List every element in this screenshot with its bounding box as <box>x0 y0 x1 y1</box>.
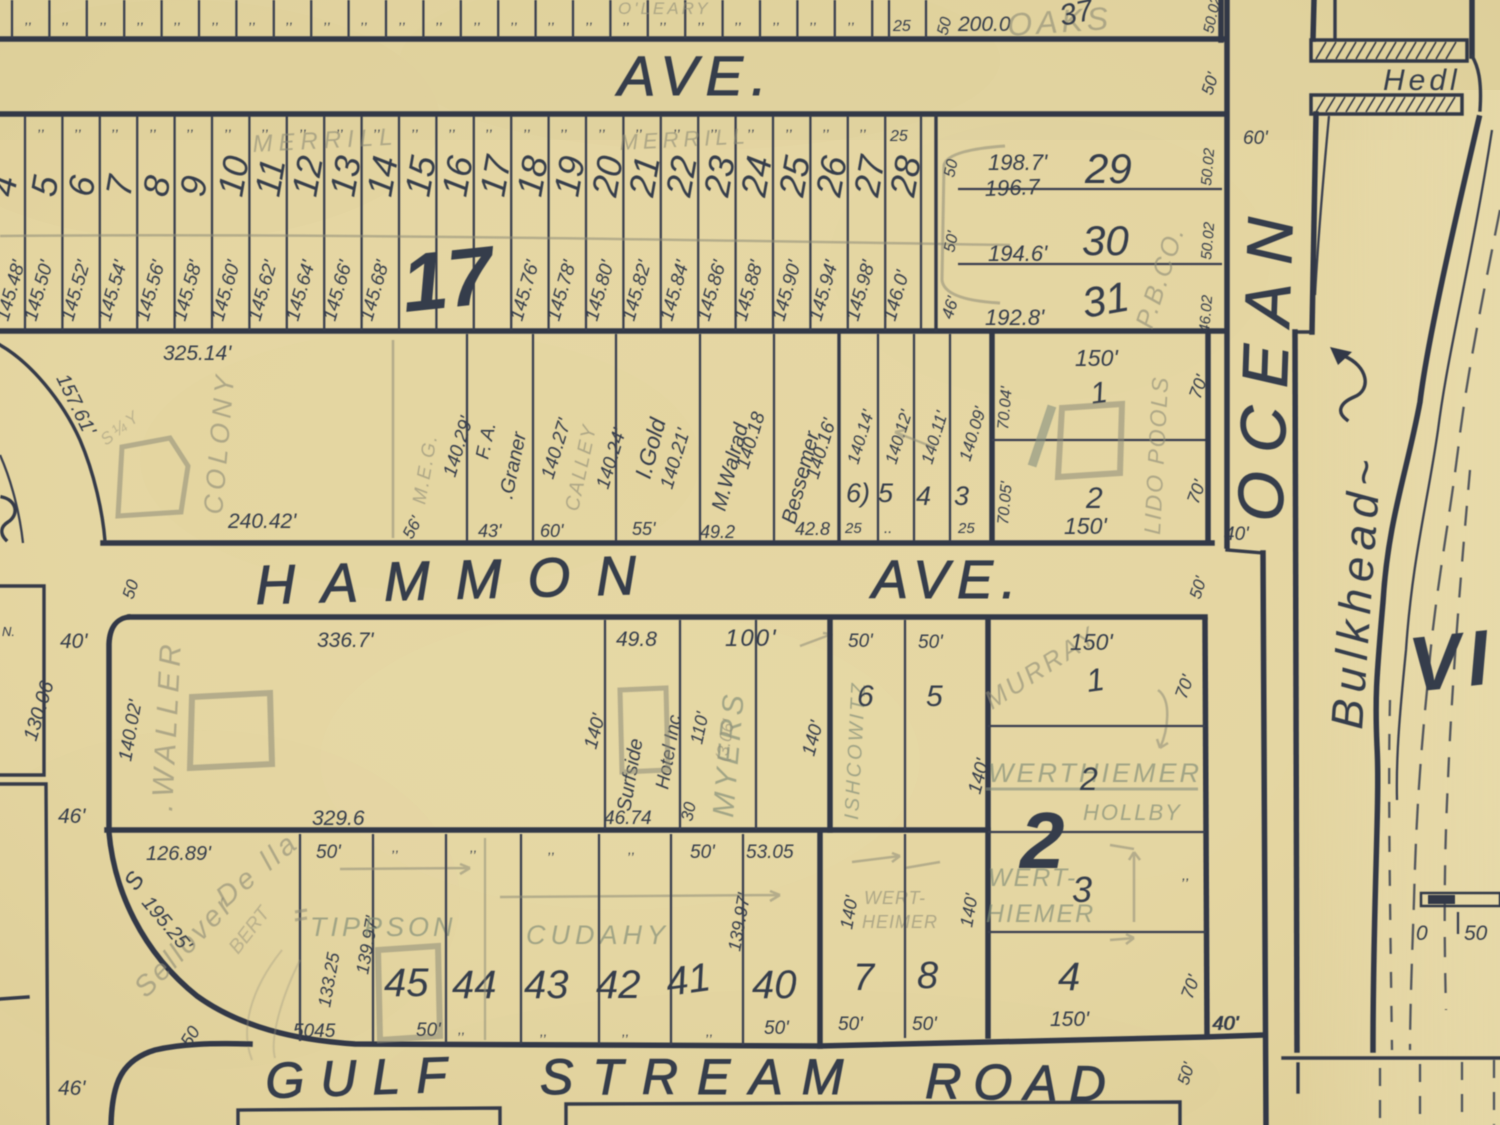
svg-text:,,: ,, <box>511 12 518 27</box>
svg-text:,,: ,, <box>150 119 157 134</box>
svg-text:,,: ,, <box>474 12 481 27</box>
svg-text:GULF: GULF <box>264 1046 463 1109</box>
svg-text:,,: ,, <box>249 12 256 27</box>
svg-text:,,: ,, <box>823 119 830 134</box>
svg-text:,,: ,, <box>458 1022 465 1037</box>
svg-text:25: 25 <box>889 128 908 145</box>
svg-text:,,: ,, <box>212 12 219 27</box>
svg-text:,,: ,, <box>599 119 606 134</box>
svg-text:55': 55' <box>632 519 656 539</box>
svg-text:,,: ,, <box>112 119 119 134</box>
svg-text:,,: ,, <box>628 842 635 857</box>
svg-text:50.02: 50.02 <box>1198 221 1218 261</box>
svg-text:HAMMON: HAMMON <box>255 543 663 616</box>
svg-text:50': 50' <box>848 631 874 652</box>
svg-text:,,: ,, <box>848 12 855 27</box>
svg-text:126.89': 126.89' <box>146 843 212 865</box>
svg-text:,,: ,, <box>548 842 555 857</box>
svg-text:,,: ,, <box>586 12 593 27</box>
svg-text:29: 29 <box>1084 145 1132 192</box>
svg-text:,,: ,, <box>399 12 406 27</box>
svg-text:Hedl: Hedl <box>1383 64 1461 97</box>
svg-text:50.02: 50.02 <box>1198 147 1218 187</box>
svg-text:46.74: 46.74 <box>604 808 652 829</box>
svg-text:N.: N. <box>2 624 15 639</box>
svg-text:,,: ,, <box>187 119 194 134</box>
svg-text:42: 42 <box>596 963 641 1007</box>
svg-text:17: 17 <box>397 230 501 330</box>
svg-text:30: 30 <box>1082 217 1129 264</box>
svg-text:41: 41 <box>663 955 713 1005</box>
svg-text:,,: ,, <box>25 12 32 27</box>
svg-text:,,: ,, <box>735 12 742 27</box>
svg-text:5: 5 <box>878 478 894 508</box>
svg-text:50': 50' <box>838 1014 864 1035</box>
svg-text:60': 60' <box>1243 128 1269 149</box>
svg-text:HOLLBY: HOLLBY <box>1083 800 1182 825</box>
svg-text:,,: ,, <box>561 119 568 134</box>
svg-text:194.6': 194.6' <box>988 241 1048 266</box>
svg-text:,,: ,, <box>524 119 531 134</box>
svg-text:,,: ,, <box>286 12 293 27</box>
svg-text:,,: ,, <box>225 119 232 134</box>
svg-text:100': 100' <box>725 625 778 652</box>
svg-text:198.7': 198.7' <box>988 150 1048 175</box>
svg-text:40': 40' <box>60 630 88 653</box>
svg-text:50': 50' <box>764 1018 790 1039</box>
svg-text:,,: ,, <box>470 840 477 855</box>
svg-text:4: 4 <box>1058 955 1080 999</box>
svg-text:,,: ,, <box>449 119 456 134</box>
svg-text:49.8: 49.8 <box>616 628 657 651</box>
svg-text:50': 50' <box>316 842 342 863</box>
svg-text:VI: VI <box>1405 612 1499 708</box>
svg-text:,,: ,, <box>137 12 144 27</box>
svg-text:WERT-: WERT- <box>988 864 1077 892</box>
svg-text:2: 2 <box>1085 482 1103 515</box>
svg-text:200.0: 200.0 <box>957 13 1011 36</box>
svg-text:40: 40 <box>752 963 797 1007</box>
svg-text:3: 3 <box>954 481 969 511</box>
svg-text:,,: ,, <box>860 119 867 134</box>
svg-text:,,: ,, <box>361 12 368 27</box>
svg-text:5045: 5045 <box>293 1021 336 1042</box>
svg-text:336.7': 336.7' <box>317 629 375 652</box>
svg-text:46': 46' <box>58 1077 86 1100</box>
svg-text:192.8': 192.8' <box>985 305 1045 330</box>
svg-text:7: 7 <box>853 957 876 999</box>
svg-text:,,: ,, <box>540 1024 547 1039</box>
svg-text:50': 50' <box>416 1020 442 1041</box>
svg-text:329.6: 329.6 <box>312 807 365 830</box>
svg-text:O'LEARY: O'LEARY <box>618 0 711 18</box>
svg-text:325.14': 325.14' <box>163 342 232 365</box>
svg-text:150': 150' <box>1075 345 1119 371</box>
svg-text:6: 6 <box>857 680 874 713</box>
svg-text:50: 50 <box>1464 922 1488 945</box>
svg-text:TIPPSON: TIPPSON <box>310 912 457 942</box>
svg-text:,,: ,, <box>486 119 493 134</box>
svg-text:6): 6) <box>846 478 870 508</box>
svg-text:150': 150' <box>1070 629 1114 655</box>
svg-text:AVE.: AVE. <box>615 44 775 107</box>
svg-text:40': 40' <box>1213 1013 1240 1035</box>
svg-text:50': 50' <box>690 842 716 863</box>
svg-text:50': 50' <box>912 1014 938 1035</box>
svg-text:OCEAN: OCEAN <box>1224 198 1307 523</box>
svg-text:,,: ,, <box>174 12 181 27</box>
svg-text:,,: ,, <box>773 12 780 27</box>
svg-text:,,: ,, <box>1182 867 1190 883</box>
svg-text:150': 150' <box>1064 513 1108 539</box>
svg-text:,,: ,, <box>62 12 69 27</box>
svg-text:..: .. <box>884 520 892 537</box>
svg-text:25: 25 <box>844 520 862 537</box>
svg-text:,,: ,, <box>75 119 82 134</box>
svg-text:WERT-: WERT- <box>864 888 926 908</box>
svg-text:,,: ,, <box>622 1024 629 1039</box>
svg-text:50: 50 <box>941 158 961 179</box>
svg-text:,,: ,, <box>548 12 555 27</box>
svg-text:,,: ,, <box>810 12 817 27</box>
svg-text:25: 25 <box>892 18 911 35</box>
svg-text:46.02: 46.02 <box>1196 294 1216 334</box>
svg-text:2: 2 <box>1079 761 1098 797</box>
svg-text:42.8: 42.8 <box>795 519 830 539</box>
svg-text:240.42': 240.42' <box>227 510 297 533</box>
svg-text:,,: ,, <box>100 12 107 27</box>
svg-text:8: 8 <box>917 955 938 997</box>
svg-text:3: 3 <box>1072 869 1092 910</box>
svg-text:43: 43 <box>524 963 569 1007</box>
svg-text:28: 28 <box>881 153 929 201</box>
svg-text:46': 46' <box>58 805 86 828</box>
svg-text:60': 60' <box>540 521 564 541</box>
svg-text:,,: ,, <box>706 1024 713 1039</box>
svg-text:43': 43' <box>478 521 502 541</box>
svg-text:,,: ,, <box>786 119 793 134</box>
svg-text:4: 4 <box>916 481 931 511</box>
svg-text:196.7: 196.7 <box>984 174 1041 201</box>
svg-text:STREAM: STREAM <box>540 1049 862 1105</box>
svg-text:,,: ,, <box>38 119 45 134</box>
svg-text:31: 31 <box>1078 272 1132 326</box>
svg-text:53.05: 53.05 <box>746 842 794 863</box>
svg-text:49.2: 49.2 <box>700 522 735 542</box>
svg-text:25: 25 <box>957 520 975 537</box>
svg-text:50': 50' <box>918 632 944 653</box>
svg-text:0: 0 <box>1416 922 1428 945</box>
svg-text:AVE.: AVE. <box>869 550 1024 610</box>
svg-text:,,: ,, <box>436 12 443 27</box>
svg-text:150': 150' <box>1050 1008 1090 1031</box>
svg-text:,,: ,, <box>392 840 399 855</box>
svg-text:HEIMER: HEIMER <box>862 912 938 932</box>
svg-text:,,: ,, <box>412 119 419 134</box>
svg-text:45: 45 <box>384 961 429 1005</box>
svg-text:,,: ,, <box>324 12 331 27</box>
svg-text:44: 44 <box>452 963 497 1007</box>
svg-text:5: 5 <box>926 680 943 713</box>
